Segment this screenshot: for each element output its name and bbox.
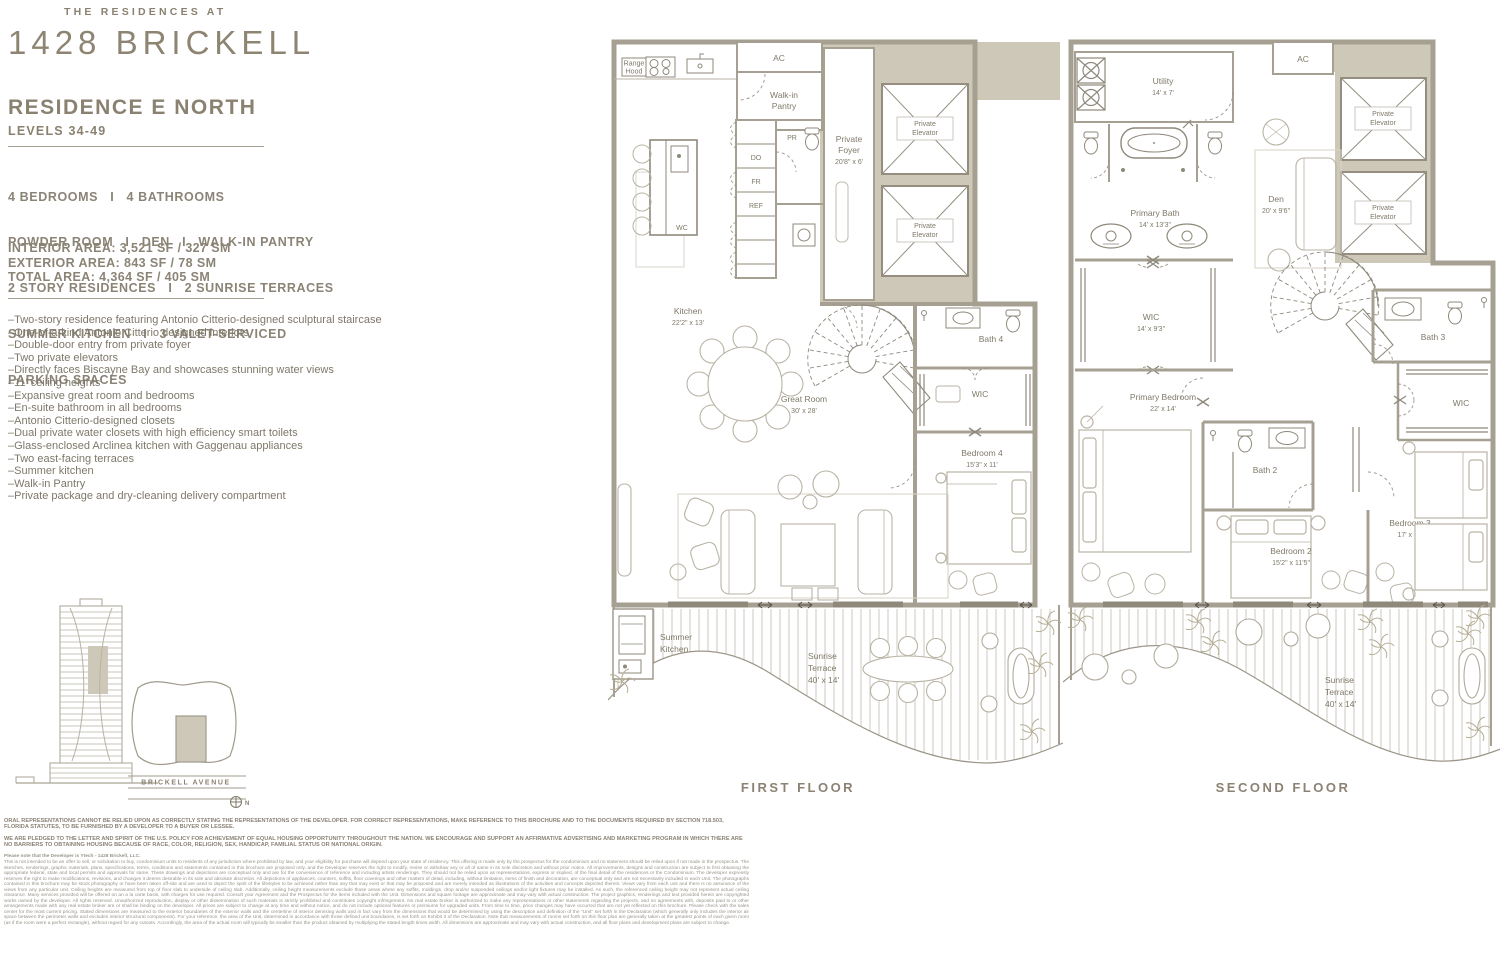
feature-item: –Antonio Citterio-designed closets xyxy=(8,415,406,428)
bed xyxy=(936,472,1031,564)
bath3-label: Bath 3 xyxy=(1421,332,1446,342)
interior-area: INTERIOR AREA: 3,521 SF / 327 SM xyxy=(8,241,231,256)
den-dims: 20' x 9'6" xyxy=(1262,208,1291,215)
primary-bath-dims: 14' x 13'3" xyxy=(1139,222,1172,229)
primary-bedroom-label: Primary Bedroom xyxy=(1130,392,1196,402)
second-floor-plan: Private Elevator Private Elevator AC Uti… xyxy=(1063,32,1500,792)
wc-label: WC xyxy=(676,225,688,232)
levels-subtitle: LEVELS 34-49 xyxy=(8,124,106,138)
ac-label: AC xyxy=(773,53,785,63)
wic2-label: WIC xyxy=(1453,398,1470,408)
closet-label: REF xyxy=(749,203,763,210)
spec-line: 4 BEDROOMS I 4 BATHROOMS xyxy=(8,190,334,205)
brand-name: 1428 BRICKELL xyxy=(8,24,315,62)
first-floor-caption: FIRST FLOOR xyxy=(608,780,988,795)
feature-item: –Double-door entry from private foyer xyxy=(8,339,406,352)
legal-fine-print: This is not intended to be an offer to s… xyxy=(4,860,749,926)
room-dims: 20'8" x 6' xyxy=(835,159,863,166)
primary-bedroom-dims: 22' x 14' xyxy=(1150,406,1176,413)
brand-pre-title: THE RESIDENCES AT xyxy=(8,6,315,18)
first-floor-plan: Private Foyer 20'8" x 6' Private Elevato… xyxy=(608,32,1063,792)
feature-item: –Two private elevators xyxy=(8,352,406,365)
terrace-label: Sunrise xyxy=(1325,675,1354,685)
terrace-dims: 40' x 14' xyxy=(808,675,840,685)
brochure-page: THE RESIDENCES AT 1428 BRICKELL RESIDENC… xyxy=(0,0,1500,972)
terrace-label: Sunrise xyxy=(808,651,837,661)
room-label: Foyer xyxy=(838,145,860,155)
utility-dims: 14' x 7' xyxy=(1152,90,1174,97)
wic-label: WIC xyxy=(972,389,989,399)
great-room-label: Great Room xyxy=(781,394,827,404)
feature-item: –One-of-a-kind Antonio Citterio designed… xyxy=(8,327,406,340)
pantry-label: Walk-in xyxy=(770,90,798,100)
wic-label: WIC xyxy=(1143,312,1160,322)
feature-item: –Directly faces Biscayne Bay and showcas… xyxy=(8,364,406,377)
brand-logo: THE RESIDENCES AT 1428 BRICKELL xyxy=(8,6,315,62)
feature-item: –11' ceiling heights xyxy=(8,377,406,390)
room-label: Private xyxy=(836,134,863,144)
page-title: RESIDENCE E NORTH xyxy=(8,96,256,120)
elevator-label: Elevator xyxy=(1370,120,1396,127)
summer-kitchen-label: Kitchen xyxy=(660,644,689,654)
total-area: TOTAL AREA: 4,364 SF / 405 SM xyxy=(8,270,231,285)
bath4-label: Bath 4 xyxy=(979,334,1004,344)
summer-kitchen xyxy=(613,609,653,679)
terrace-label: Terrace xyxy=(1325,687,1354,697)
elevator-label: Private xyxy=(1372,111,1394,118)
bedroom4-label: Bedroom 4 xyxy=(961,448,1003,458)
feature-item: –Two-story residence featuring Antonio C… xyxy=(8,314,406,327)
legal-fair-housing: WE ARE PLEDGED TO THE LETTER AND SPIRIT … xyxy=(4,836,749,849)
den-label: Den xyxy=(1268,194,1284,204)
feature-item: –Walk-in Pantry xyxy=(8,478,406,491)
terrace-planters xyxy=(981,633,1034,712)
divider xyxy=(8,298,264,299)
great-room-dims: 30' x 28' xyxy=(791,408,817,415)
feature-item: –Private package and dry-cleaning delive… xyxy=(8,490,406,503)
bed xyxy=(1217,516,1325,598)
compass-icon xyxy=(231,797,242,808)
utility-label: Utility xyxy=(1153,76,1175,86)
feature-item: –En-suite bathroom in all bedrooms xyxy=(8,402,406,415)
summer-kitchen-label: Summer xyxy=(660,632,692,642)
street-label: BRICKELL AVENUE xyxy=(141,780,231,787)
area-stats: INTERIOR AREA: 3,521 SF / 327 SM EXTERIO… xyxy=(8,241,231,285)
elevator-label: Private xyxy=(914,223,936,230)
second-floor-caption: SECOND FLOOR xyxy=(1063,780,1500,795)
feature-item: –Expansive great room and bedrooms xyxy=(8,390,406,403)
wic-dims: 14' x 9'3" xyxy=(1137,326,1166,333)
elevator-label: Elevator xyxy=(912,130,938,137)
terrace-dims: 40' x 14' xyxy=(1325,699,1357,709)
elevator-label: Elevator xyxy=(1370,214,1396,221)
range-hood-label: Range xyxy=(624,61,645,68)
feature-item: –Glass-enclosed Arclinea kitchen with Ga… xyxy=(8,440,406,453)
legal-developer-note: Please note that the Developer is Ytech … xyxy=(4,854,749,860)
closet-label: FR xyxy=(751,179,760,186)
building-key-plan: BRICKELL AVENUE N xyxy=(8,588,288,808)
closet-label: DO xyxy=(751,155,762,162)
kitchen-dims: 22'2" x 13' xyxy=(672,320,704,327)
terrace-label: Terrace xyxy=(808,663,837,673)
divider xyxy=(8,146,264,147)
compass-north-label: N xyxy=(245,801,249,807)
bedroom2-dims: 15'2" x 11'5" xyxy=(1272,560,1310,567)
range-hood-label: Hood xyxy=(626,69,643,76)
feature-item: –Two east-facing terraces xyxy=(8,453,406,466)
legal-oral-representations: ORAL REPRESENTATIONS CANNOT BE RELIED UP… xyxy=(4,818,749,831)
kitchen-label: Kitchen xyxy=(674,306,703,316)
feature-item: –Summer kitchen xyxy=(8,465,406,478)
core-block xyxy=(975,42,1060,100)
elevator-label: Elevator xyxy=(912,232,938,239)
site-plan-icon xyxy=(132,682,236,765)
ac-label: AC xyxy=(1297,54,1309,64)
bedroom2-label: Bedroom 2 xyxy=(1270,546,1312,556)
terrace-dining-set xyxy=(863,637,953,703)
legal-disclaimer: ORAL REPRESENTATIONS CANNOT BE RELIED UP… xyxy=(4,818,749,926)
bedroom4-dims: 15'3" x 11' xyxy=(966,462,998,469)
primary-bath-label: Primary Bath xyxy=(1130,208,1179,218)
feature-list: –Two-story residence featuring Antonio C… xyxy=(8,314,406,503)
powder-room-label: PR xyxy=(787,135,797,142)
feature-item: –Dual private water closets with high ef… xyxy=(8,427,406,440)
elevator-label: Private xyxy=(914,121,936,128)
bath2-label: Bath 2 xyxy=(1253,465,1278,475)
pantry-label: Pantry xyxy=(772,101,797,111)
exterior-area: EXTERIOR AREA: 843 SF / 78 SM xyxy=(8,256,231,271)
elevator-label: Private xyxy=(1372,205,1394,212)
